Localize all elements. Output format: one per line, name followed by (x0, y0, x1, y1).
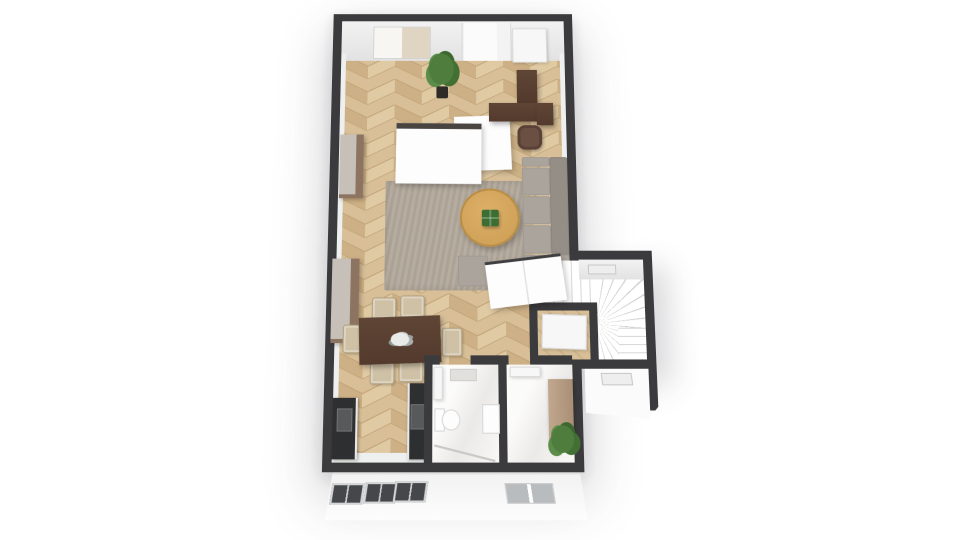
bathroom-wall-left (424, 355, 433, 462)
dining-chair[interactable] (370, 362, 395, 385)
sofa-armrest (522, 157, 550, 166)
inner-wall-segment (433, 355, 440, 364)
sofa-cushion (522, 196, 550, 224)
ottoman[interactable] (458, 256, 488, 287)
floorplan-canvas (0, 0, 960, 540)
sofa-cushion (523, 225, 552, 253)
kitchen-sink (336, 408, 352, 431)
top-window-with-blind[interactable] (373, 27, 431, 59)
bed-with-headboard[interactable] (395, 123, 481, 184)
coffee-table-plant-box[interactable] (482, 210, 499, 227)
sofa-cushion (522, 168, 550, 196)
tall-plant-pot (436, 86, 448, 98)
dining-chair[interactable] (400, 295, 425, 317)
toilet-bowl[interactable] (442, 409, 461, 430)
entry-door[interactable] (512, 28, 547, 62)
stair-window-slit-lower[interactable] (601, 373, 634, 385)
annex-facade-corner (648, 369, 658, 411)
annex-facade (585, 369, 659, 419)
staircase-lower-flight[interactable] (618, 328, 647, 360)
closet-door[interactable] (542, 314, 587, 350)
tall-plant-foliage[interactable] (429, 54, 454, 85)
facade-window-1[interactable] (329, 483, 365, 505)
desk-cabinet[interactable] (517, 70, 538, 103)
bathroom-door[interactable] (433, 367, 442, 400)
window-glass-pane (374, 28, 402, 59)
white-sideboard[interactable] (485, 253, 568, 309)
floorplan-3d-scene (318, 0, 677, 502)
bathroom-wall-shelf (450, 369, 477, 381)
office-chair[interactable] (517, 125, 542, 149)
flower-centerpiece (391, 333, 410, 346)
top-wall-face (341, 21, 564, 61)
window-roller-blind (402, 28, 430, 59)
hallway-door[interactable] (510, 367, 541, 377)
dining-chair[interactable] (442, 328, 463, 357)
closet-wall-top (529, 302, 597, 310)
hallway-plant[interactable] (551, 425, 575, 453)
desk-return[interactable] (536, 103, 553, 125)
stair-window-slit-upper[interactable] (588, 265, 617, 275)
washbasin[interactable] (482, 404, 500, 434)
annex-top-wall-face (579, 260, 644, 280)
inner-wall-segment (471, 355, 509, 364)
glass-wall-panel[interactable] (461, 23, 511, 61)
sideboard-cabinet-upper[interactable] (339, 135, 364, 199)
front-facade (325, 472, 588, 520)
facade-window-3[interactable] (393, 481, 429, 503)
facade-window-framed[interactable] (504, 483, 556, 504)
inner-wall-segment (537, 355, 572, 364)
